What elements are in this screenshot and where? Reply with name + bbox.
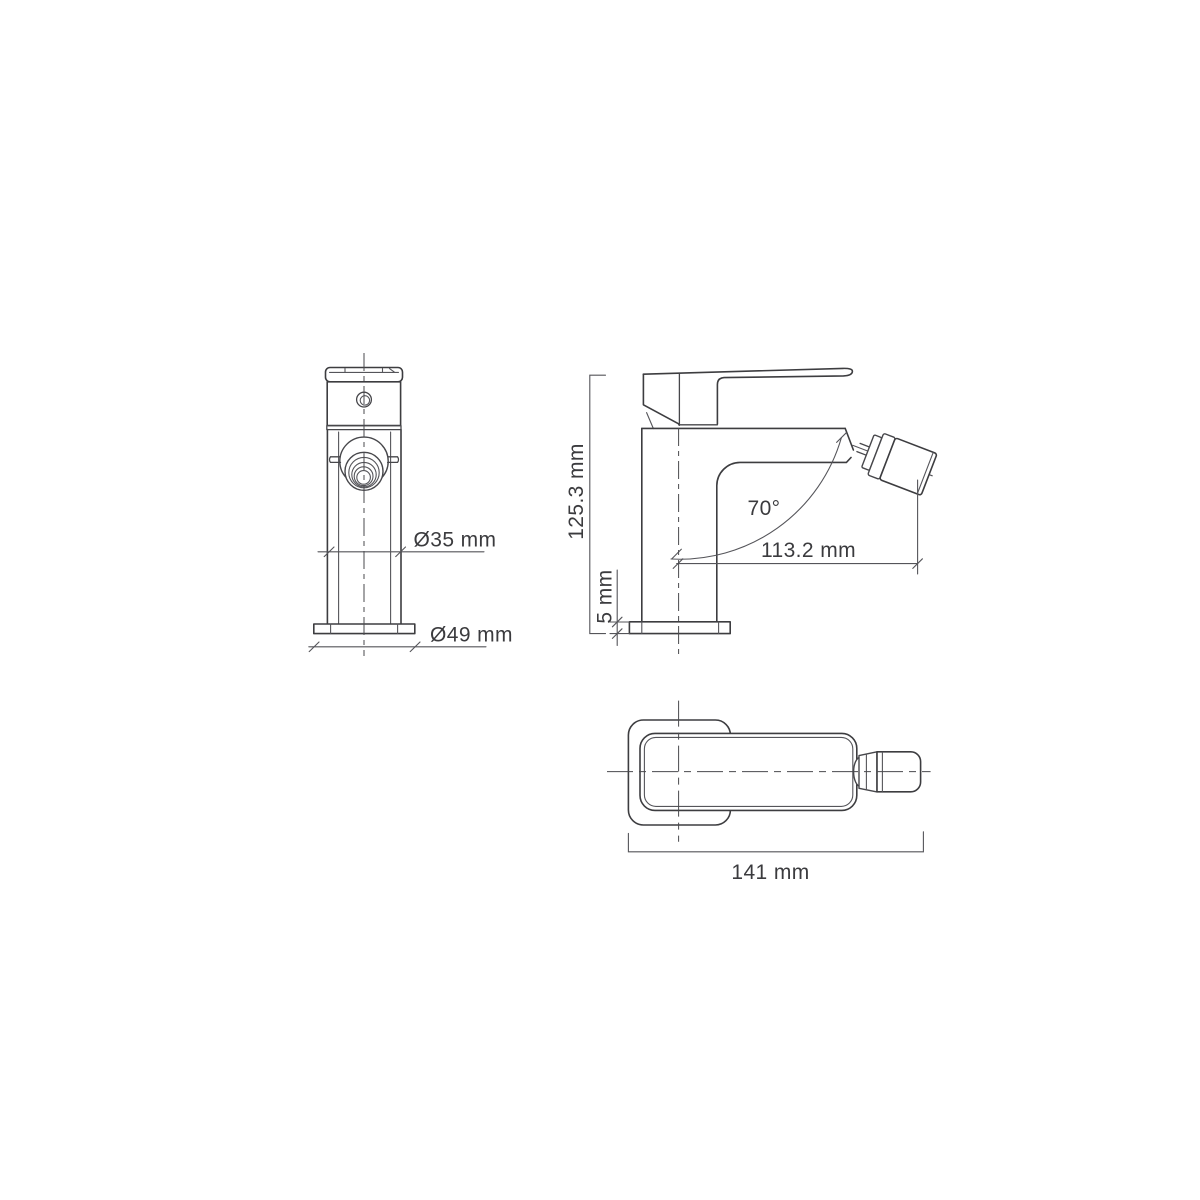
top-view: 141 mm bbox=[607, 701, 931, 884]
side-nozzle bbox=[845, 425, 940, 497]
top-faucet-outline bbox=[628, 720, 920, 825]
front-dim-body-diameter: Ø35 mm bbox=[318, 529, 496, 557]
dim-label-spout-reach: 113.2 mm bbox=[761, 539, 856, 562]
technical-drawing-canvas: Ø35 mm Ø49 mm bbox=[0, 0, 1200, 1200]
side-view: 70° 113.2 mm 125.3 mm 5 mm bbox=[565, 368, 940, 657]
dim-label-base-height: 5 mm bbox=[594, 569, 617, 623]
dim-label-base-diameter: Ø49 mm bbox=[430, 624, 513, 647]
dim-label-total-length: 141 mm bbox=[731, 861, 809, 884]
side-faucet-outline bbox=[629, 368, 940, 633]
dim-label-total-height: 125.3 mm bbox=[565, 443, 588, 540]
dim-label-spout-angle: 70° bbox=[748, 497, 781, 520]
front-view: Ø35 mm Ø49 mm bbox=[309, 353, 513, 656]
top-dim-total-length: 141 mm bbox=[628, 832, 923, 884]
drawing-sheet: Ø35 mm Ø49 mm bbox=[0, 0, 1200, 1200]
dim-label-body-diameter: Ø35 mm bbox=[414, 529, 497, 552]
side-dim-spout-reach: 113.2 mm bbox=[673, 480, 922, 574]
